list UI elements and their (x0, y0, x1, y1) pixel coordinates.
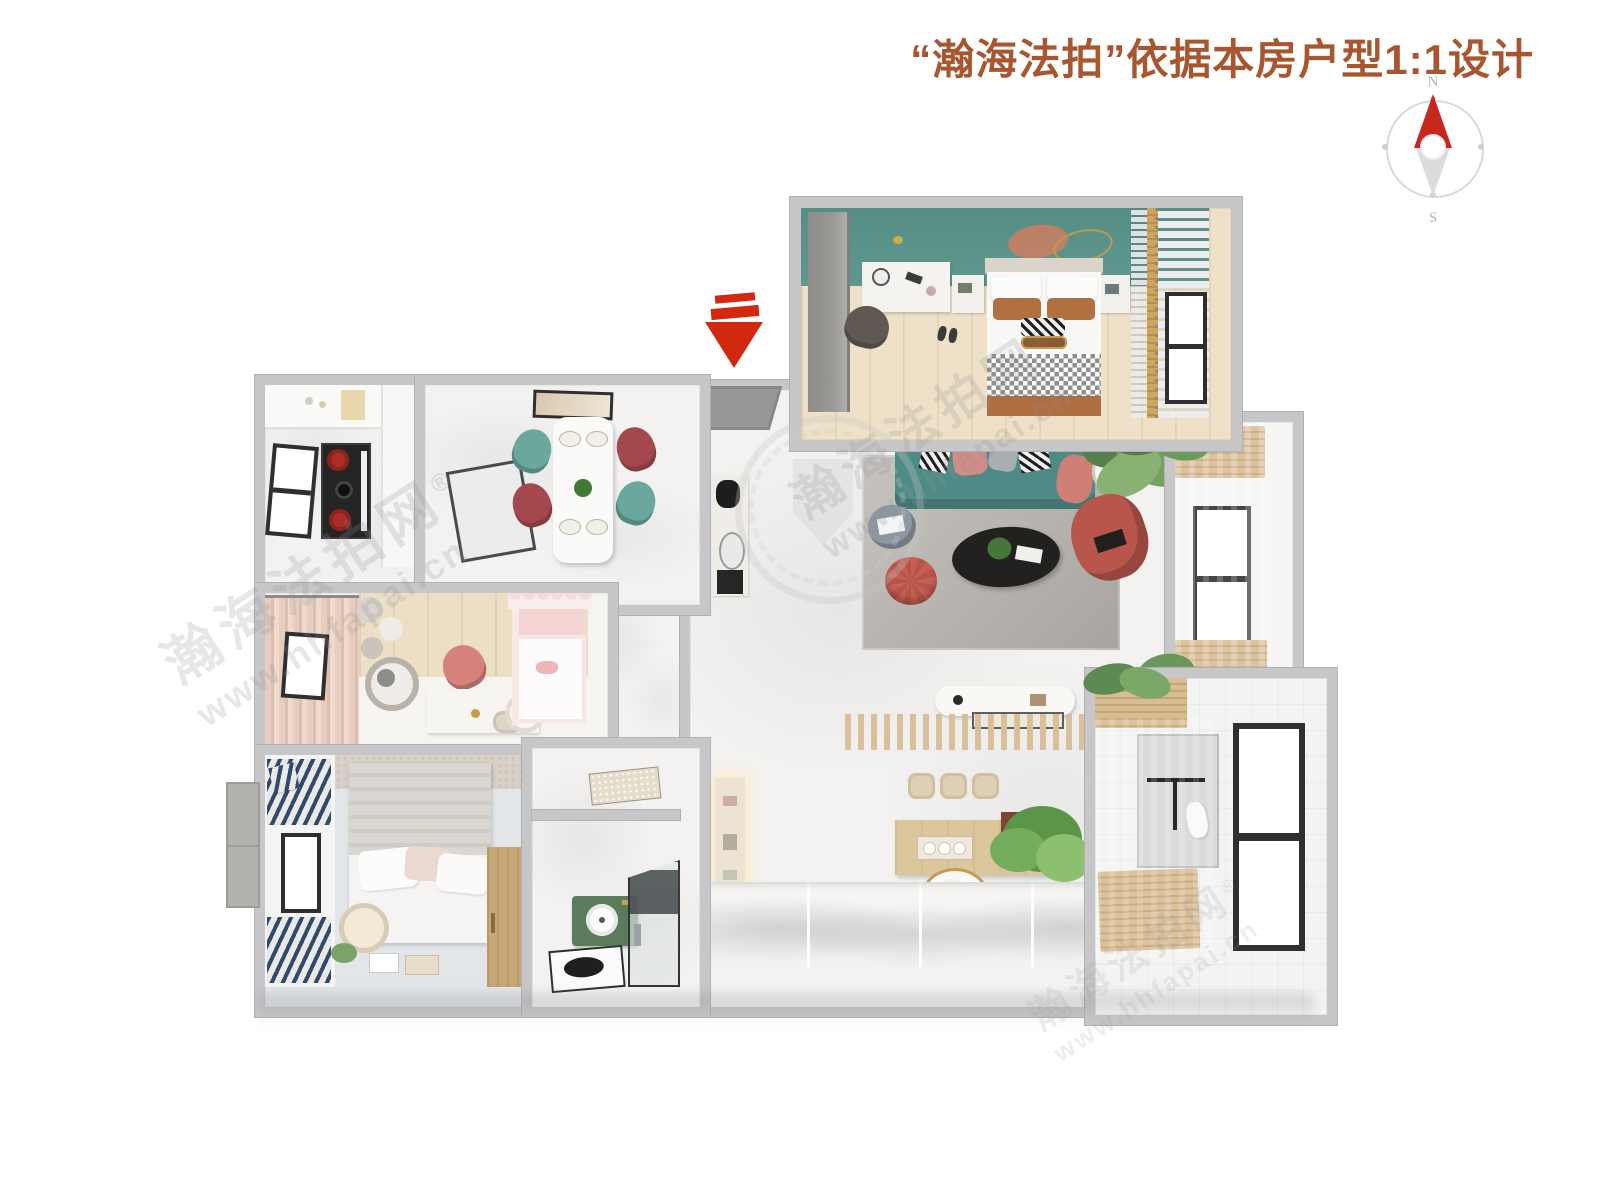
plate (586, 519, 608, 535)
bag (716, 480, 740, 508)
vanity-desk (862, 262, 950, 312)
jar (319, 401, 326, 408)
kitchen-counter-side (381, 385, 415, 567)
toy-bear (377, 669, 395, 687)
cosmetics (905, 272, 923, 285)
kids-window (281, 632, 329, 701)
plant-green (990, 798, 1100, 888)
window-blinds (1131, 208, 1147, 418)
bedroom-window (281, 833, 321, 913)
stool-blue (868, 505, 916, 549)
compass-south-label: S (1379, 210, 1487, 227)
dining-table (553, 417, 613, 563)
slat-screen (845, 714, 1113, 750)
gas-stove (321, 443, 371, 539)
tea-stool (940, 773, 967, 799)
plate (559, 519, 581, 535)
wardrobe (487, 847, 521, 987)
compass: N S (1379, 74, 1487, 230)
burner (335, 481, 353, 499)
makeup-mirror (872, 268, 890, 286)
wardrobe-handle (491, 913, 495, 933)
bay-window-seat (265, 755, 335, 987)
entrance-arrow-head (705, 322, 763, 368)
plant-sprig (331, 943, 357, 963)
utility-window (1233, 723, 1305, 951)
nightstand (952, 275, 984, 313)
red-pot (329, 509, 351, 531)
master-window (1165, 292, 1207, 404)
cabinet-item (723, 834, 737, 850)
knob (471, 709, 480, 718)
master-bed (985, 258, 1103, 416)
bolster (1021, 336, 1067, 349)
folded-duvet (349, 763, 491, 855)
window-bar (273, 487, 311, 495)
ceiling-lamp (893, 236, 903, 244)
dining-room (415, 375, 710, 615)
tea-tray (917, 836, 973, 860)
unit-line (228, 784, 258, 847)
dining-chair-red (611, 422, 661, 476)
centerpiece-plant (574, 479, 592, 497)
bathroom-block (522, 738, 710, 1017)
open-book (405, 955, 439, 975)
wall-painting (533, 390, 614, 421)
master-bedroom (790, 197, 1242, 451)
mirror-glass (563, 956, 605, 979)
shower-floor (630, 870, 682, 914)
entrance-arrow-bar (711, 305, 760, 320)
caramel-pillow (1047, 298, 1095, 320)
pompom-trim (1155, 208, 1158, 418)
compass-north-label: N (1379, 74, 1487, 91)
utility-balcony (1085, 668, 1337, 1025)
entrance-arrow-icon (703, 294, 767, 370)
console-item (953, 695, 963, 705)
shoe-cabinet (712, 476, 748, 596)
plant-shelf (1083, 656, 1179, 704)
plant-leaves (1036, 834, 1092, 882)
book (1105, 284, 1119, 294)
striped-cushion (267, 917, 331, 983)
jar (305, 397, 313, 405)
book (958, 283, 972, 293)
counter-box (341, 390, 365, 420)
red-pot (327, 449, 349, 471)
teddy-bear (379, 617, 403, 641)
plan-shadow (258, 994, 1314, 1024)
tea-cup (923, 842, 936, 855)
round-sink (586, 904, 618, 936)
compass-dot-e (1478, 144, 1484, 150)
toy-basket (365, 657, 419, 711)
window-bar (1169, 344, 1203, 349)
stove-knobs (361, 451, 367, 531)
books (1015, 545, 1043, 563)
floorplan-render: “瀚海法拍”依据本房户型1:1设计 N S (0, 0, 1600, 1200)
tea-cup (953, 842, 966, 855)
exterior-unit (226, 782, 260, 908)
tray (717, 570, 743, 594)
open-book (369, 953, 399, 973)
cabinet-item (723, 796, 737, 806)
compass-hub (1422, 136, 1444, 158)
floor-mat (589, 766, 662, 805)
cabinet-item (723, 870, 737, 880)
plate (586, 431, 608, 447)
mirror (719, 532, 745, 570)
teddy-bear (361, 637, 383, 659)
entrance-arrow-bar (715, 292, 756, 303)
pink-pillow (516, 609, 584, 635)
tea-cup (938, 842, 951, 855)
shower-fixture (634, 924, 641, 946)
table-plant (987, 537, 1012, 561)
sheer-curtain (1095, 718, 1215, 958)
plate (559, 431, 581, 447)
checkered-throw (987, 354, 1101, 396)
book (1093, 529, 1126, 553)
pouf-pink (885, 557, 937, 605)
slipper (936, 325, 947, 341)
bed-duvet (514, 635, 586, 723)
leaning-mirror (548, 945, 625, 993)
painting-art (536, 393, 611, 418)
tea-stool (972, 773, 999, 799)
accent-pillow (1021, 318, 1065, 336)
tea-stool (908, 773, 935, 799)
caramel-pillow (993, 298, 1041, 320)
kitchen-window (265, 443, 319, 539)
console-item (1030, 694, 1046, 706)
bow (536, 661, 558, 674)
caramel-blanket (987, 396, 1101, 416)
bed-ruffle (512, 609, 519, 725)
compass-dot-w (1382, 144, 1388, 150)
white-pillow (435, 852, 491, 895)
drain (599, 917, 605, 923)
teddy-bear (357, 597, 383, 623)
shower-enclosure (628, 860, 680, 987)
cosmetics (926, 286, 936, 296)
kids-bed (512, 593, 588, 725)
partition-wall (532, 810, 680, 820)
slipper (948, 327, 958, 343)
bedroom-secondary (255, 745, 552, 1017)
dining-chair-teal (611, 476, 661, 530)
window-bar (1239, 833, 1299, 841)
books (877, 515, 905, 535)
wardrobe-gray (808, 212, 850, 412)
bed-canopy (508, 593, 592, 609)
